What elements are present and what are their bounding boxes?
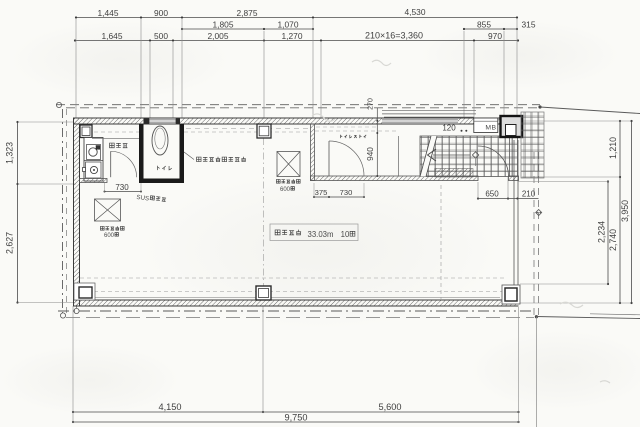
svg-text:650: 650	[485, 190, 499, 199]
svg-text:4,530: 4,530	[405, 7, 426, 17]
svg-text:855: 855	[477, 19, 491, 29]
svg-text:970: 970	[488, 31, 502, 41]
svg-text:MB: MB	[485, 125, 496, 132]
svg-text:1,210: 1,210	[608, 137, 618, 159]
svg-text:9,750: 9,750	[285, 413, 308, 423]
svg-text:5,600: 5,600	[379, 402, 402, 412]
svg-text:210: 210	[522, 190, 536, 199]
svg-text:375: 375	[315, 188, 328, 197]
svg-text:210×16=3,360: 210×16=3,360	[365, 31, 423, 41]
svg-text:270: 270	[368, 98, 375, 110]
svg-text:2,234: 2,234	[597, 221, 607, 243]
svg-text:2,740: 2,740	[608, 229, 618, 251]
svg-text:3,950: 3,950	[620, 200, 630, 222]
svg-text:2,005: 2,005	[208, 31, 229, 41]
svg-text:600: 600	[280, 187, 291, 193]
svg-text:33.03m: 33.03m	[307, 230, 333, 239]
svg-text:1,070: 1,070	[278, 19, 299, 29]
svg-text:1,805: 1,805	[213, 19, 234, 29]
svg-text:1,645: 1,645	[102, 31, 123, 41]
svg-text:10: 10	[341, 230, 350, 239]
svg-text:940: 940	[366, 147, 375, 161]
svg-text:1,270: 1,270	[282, 31, 303, 41]
svg-text:900: 900	[154, 8, 168, 18]
svg-text:1,445: 1,445	[98, 8, 119, 18]
svg-text:120: 120	[442, 124, 456, 133]
svg-text:4,150: 4,150	[159, 402, 182, 412]
svg-text:730: 730	[115, 183, 129, 192]
svg-text:500: 500	[154, 31, 168, 41]
svg-text:1,323: 1,323	[5, 142, 15, 164]
svg-text:315: 315	[522, 19, 536, 29]
svg-text:2,875: 2,875	[237, 8, 258, 18]
svg-text:730: 730	[340, 188, 353, 197]
svg-text:600: 600	[104, 233, 115, 239]
svg-text:2,627: 2,627	[5, 232, 15, 254]
